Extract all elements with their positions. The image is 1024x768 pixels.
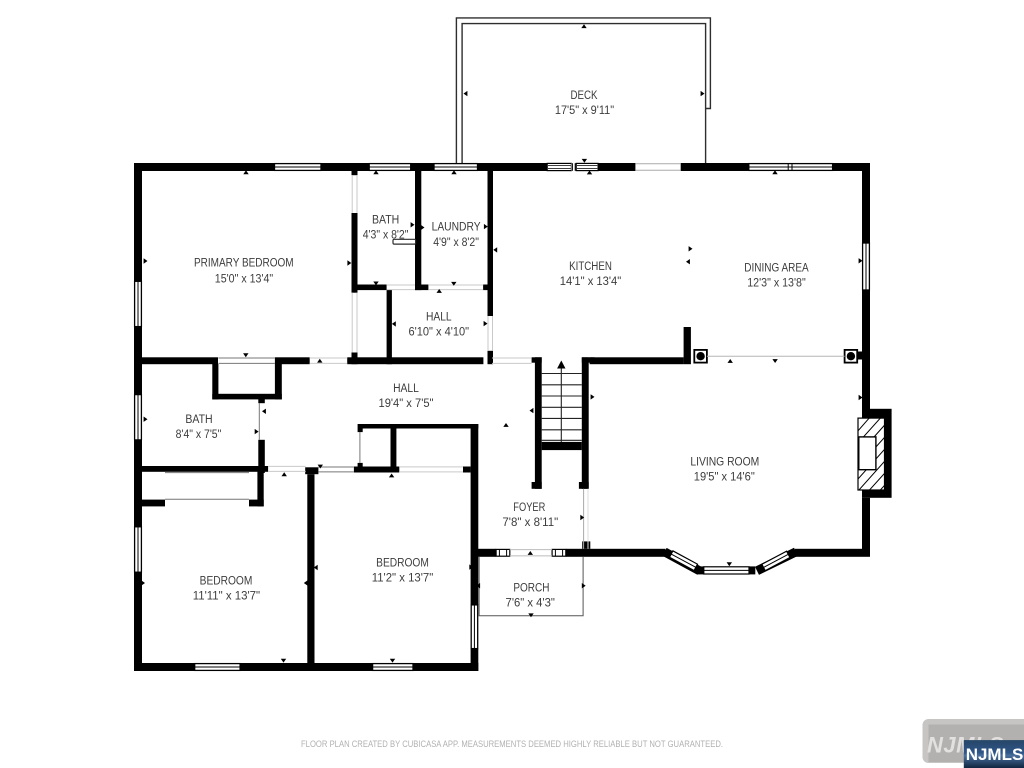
svg-text:11'2" x 13'7": 11'2" x 13'7" (372, 570, 434, 584)
svg-text:4'9" x 8'2": 4'9" x 8'2" (433, 235, 479, 249)
svg-text:HALL: HALL (426, 310, 452, 324)
svg-text:19'5" x 14'6": 19'5" x 14'6" (694, 470, 755, 484)
svg-text:BEDROOM: BEDROOM (376, 555, 429, 569)
svg-text:PORCH: PORCH (513, 581, 549, 595)
svg-text:7'8" x 8'11": 7'8" x 8'11" (502, 515, 558, 529)
svg-text:12'3" x 13'8": 12'3" x 13'8" (747, 276, 806, 290)
svg-text:PRIMARY BEDROOM: PRIMARY BEDROOM (194, 256, 294, 270)
svg-text:KITCHEN: KITCHEN (569, 259, 612, 273)
svg-text:8'4" x 7'5": 8'4" x 7'5" (176, 427, 222, 441)
svg-text:FLOOR PLAN CREATED BY CUBICASA: FLOOR PLAN CREATED BY CUBICASA APP. MEAS… (301, 739, 723, 749)
svg-text:15'0" x 13'4": 15'0" x 13'4" (215, 271, 273, 285)
svg-text:17'5" x 9'11": 17'5" x 9'11" (555, 103, 614, 117)
svg-text:11'11" x 13'7": 11'11" x 13'7" (193, 588, 260, 602)
svg-text:19'4" x 7'5": 19'4" x 7'5" (379, 396, 434, 410)
svg-text:NJMLS: NJMLS (966, 745, 1024, 764)
svg-text:BATH: BATH (185, 412, 212, 426)
svg-text:4'3" x 8'2": 4'3" x 8'2" (363, 227, 409, 241)
svg-text:LIVING ROOM: LIVING ROOM (690, 455, 759, 469)
svg-text:HALL: HALL (393, 381, 419, 395)
svg-text:DINING AREA: DINING AREA (744, 261, 809, 275)
svg-text:BEDROOM: BEDROOM (200, 573, 253, 587)
svg-text:DECK: DECK (571, 88, 599, 102)
svg-text:7'6" x 4'3": 7'6" x 4'3" (506, 596, 555, 610)
svg-text:LAUNDRY: LAUNDRY (432, 220, 481, 234)
svg-text:FOYER: FOYER (513, 500, 545, 514)
svg-text:BATH: BATH (372, 212, 399, 226)
svg-text:14'1" x 13'4": 14'1" x 13'4" (560, 274, 622, 288)
svg-text:6'10" x 4'10": 6'10" x 4'10" (409, 325, 470, 339)
